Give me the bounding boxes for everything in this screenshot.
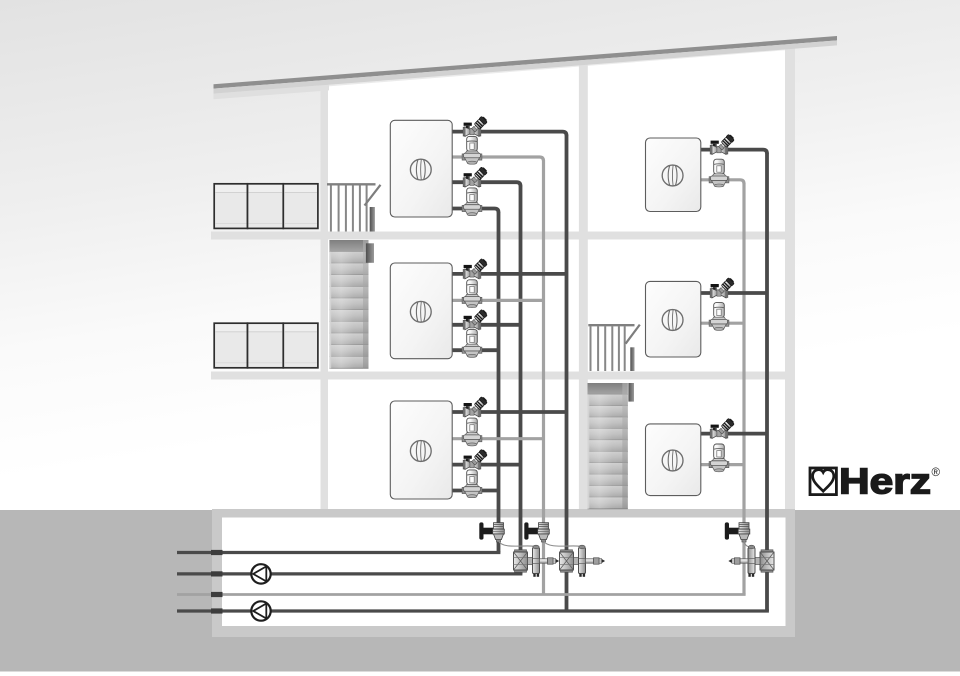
svg-text:®: ®	[932, 467, 941, 479]
svg-text:Herz: Herz	[839, 461, 931, 502]
